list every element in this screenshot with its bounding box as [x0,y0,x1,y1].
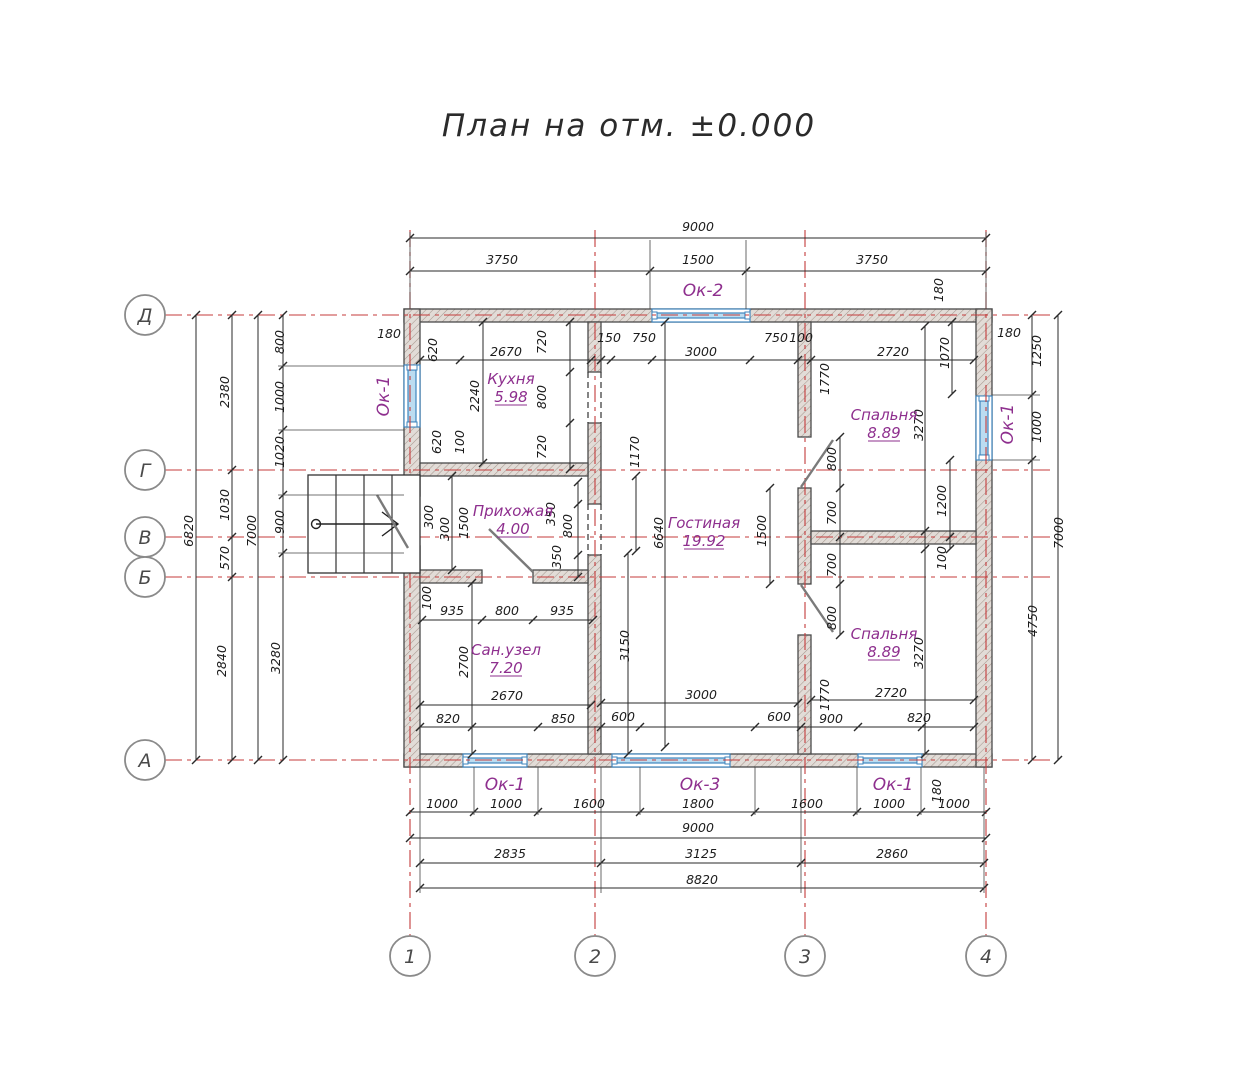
dimension-label: 180 [377,326,401,341]
dimension-label: 1770 [817,363,832,395]
dimension-label: 720 [534,435,549,459]
axis-label: А [137,750,152,772]
wall [976,309,992,767]
axis-label: 1 [404,946,416,968]
room-name: Спальня [851,625,918,643]
dimension-label: 6820 [181,515,196,547]
dimension-label: 3750 [486,252,518,267]
dimension-label: 150 [597,330,621,345]
dimension-label: 9000 [682,219,714,234]
dimension-label: 1600 [573,796,605,811]
dimension-label: 7000 [1051,517,1066,549]
room-name: Спальня [851,406,918,424]
dimension-label: 1000 [873,796,905,811]
dimension-label: 2670 [491,688,523,703]
dimension-label: 800 [272,330,287,354]
dimension-label: 1030 [217,489,232,521]
dimension-label: 820 [436,711,460,726]
window-cap [979,455,989,460]
room-name: Прихожая [473,502,553,520]
dimension-label: 1070 [937,337,952,369]
dimension-label: 2860 [876,846,908,861]
room-name: Кухня [487,370,534,388]
dimension-label: 100 [452,430,467,454]
dimension-label: 6640 [651,517,666,549]
window-label: Ок-1 [998,404,1018,445]
dimension-label: 935 [440,603,464,618]
room-area: 7.20 [489,659,522,677]
dimension-label: 2720 [877,344,909,359]
dimension-label: 7000 [244,515,259,547]
axis-label: Б [138,567,151,589]
room-name: Сан.узел [471,641,541,659]
dimension-label: 2720 [875,685,907,700]
window-label: Ок-1 [873,775,914,795]
dimension-label: 1800 [682,796,714,811]
dimension-label: 720 [534,330,549,354]
dimension-label: 2380 [217,376,232,408]
room-name: Гостиная [668,514,740,532]
dimension-label: 1000 [938,796,970,811]
dimension-label: 900 [819,711,843,726]
axis-label: 4 [980,946,992,968]
wall [404,546,420,767]
dimension-label: 2240 [467,380,482,412]
dimension-label: 600 [611,709,635,724]
window-cap [407,422,417,427]
window-label: Ок-1 [485,775,526,795]
dimension-label: 3280 [268,642,283,674]
window-glass [980,401,988,455]
window-label: Ок-2 [683,281,724,301]
dimension-label: 180 [931,278,946,302]
dimension-label: 100 [789,330,813,345]
room-area: 4.00 [496,520,529,538]
dimension-label: 100 [934,546,949,570]
dimension-label: 750 [632,330,656,345]
dimension-label: 2840 [214,645,229,677]
dimension-label: 9000 [682,820,714,835]
axis-label: 2 [589,946,601,968]
dimension-label: 570 [217,546,232,570]
dimension-label: 800 [824,447,839,471]
dimension-label: 8820 [686,872,718,887]
window-cap [979,396,989,401]
floor-plan: ДГВБА12349000375015003750180180620267015… [0,0,1258,1080]
dimension-label: 1500 [682,252,714,267]
dimension-label: 800 [560,514,575,538]
dimension-label: 1020 [272,436,287,468]
dimension-label: 1600 [791,796,823,811]
dimension-label: 1000 [490,796,522,811]
axis-label: Д [137,305,153,327]
dimension-label: 800 [495,603,519,618]
axis-label: Г [140,460,152,482]
dimension-label: 300 [437,517,452,541]
dimension-label: 700 [824,501,839,525]
window-glass [408,370,416,422]
room-area: 8.89 [867,643,900,661]
dimension-label: 1000 [426,796,458,811]
dimension-label: 620 [429,430,444,454]
dimension-label: 2700 [456,646,471,678]
dimension-label: 620 [425,338,440,362]
dimension-label: 700 [824,553,839,577]
dimension-label: 300 [421,505,436,529]
dimension-label: 100 [419,586,434,610]
dimension-label: 935 [550,603,574,618]
dimension-label: 2835 [494,846,526,861]
drawing-sheet: План на отм. ±0.000 ДГВБА123490003750150… [0,0,1258,1080]
dimension-label: 1250 [1029,335,1044,367]
window-label: Ок-1 [374,376,394,417]
dimension-label: 1000 [272,381,287,413]
window-cap [407,365,417,370]
dimension-label: 600 [767,709,791,724]
dimension-label: 3125 [685,846,717,861]
dimension-label: 180 [997,325,1021,340]
dimension-label: 1000 [1029,411,1044,443]
dimension-label: 800 [824,606,839,630]
dimension-label: 1500 [456,507,471,539]
dimension-label: 750 [764,330,788,345]
dimension-label: 3150 [617,630,632,662]
axis-label: В [138,527,151,549]
dimension-label: 4750 [1025,605,1040,637]
window-label: Ок-3 [680,775,721,795]
dimension-label: 820 [907,710,931,725]
dimension-label: 850 [551,711,575,726]
dimension-label: 3000 [685,687,717,702]
room-area: 8.89 [867,424,900,442]
dimension-label: 3750 [856,252,888,267]
room-area: 5.98 [494,388,527,406]
dimension-label: 350 [549,545,564,569]
dimension-label: 1200 [934,485,949,517]
dimension-label: 800 [534,385,549,409]
dimension-label: 1500 [754,515,769,547]
dimension-label: 1770 [817,679,832,711]
room-area: 19.92 [683,532,726,550]
dimension-label: 3000 [685,344,717,359]
dimension-label: 900 [272,510,287,534]
axis-label: 3 [799,946,811,968]
dimension-label: 1170 [627,436,642,468]
dimension-label: 2670 [490,344,522,359]
